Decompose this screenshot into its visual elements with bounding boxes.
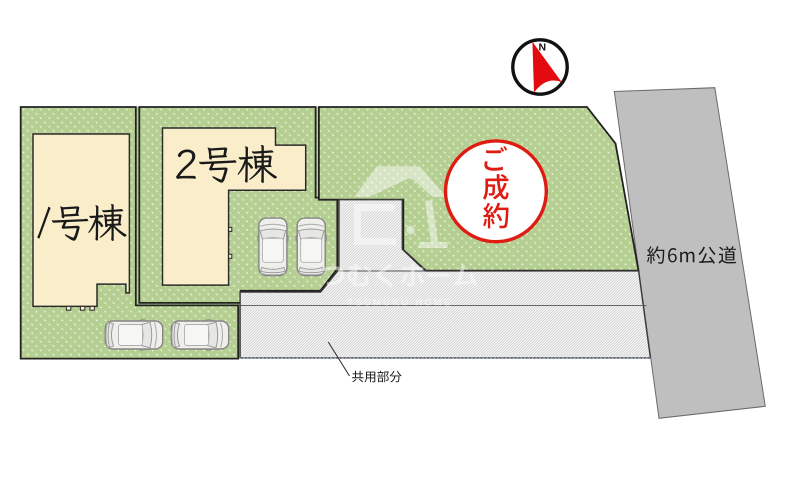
svg-text:N: N <box>539 42 547 54</box>
svg-text:TSUMUKU HOME: TSUMUKU HOME <box>347 298 452 309</box>
